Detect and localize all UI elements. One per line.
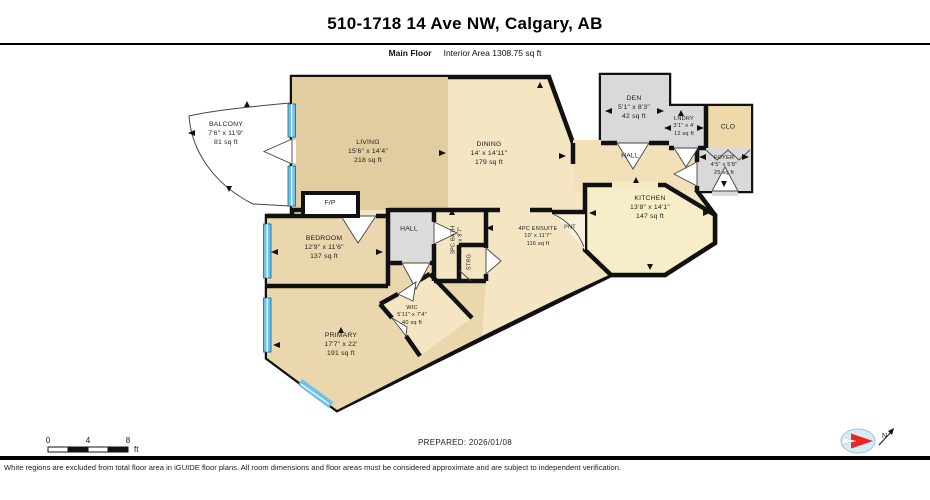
prepared-date: PREPARED: 2026/01/08 xyxy=(0,438,930,447)
room-label-wic: WIC 5'11" x 7'4" 40 sq ft xyxy=(397,305,427,327)
room-label-bedroom: BEDROOM 12'9" x 11'6" 137 sq ft xyxy=(304,235,343,261)
room-label-fireplace: F/P xyxy=(324,200,335,209)
room-label-primary: PRIMARY 17'7" x 22' 191 sq ft xyxy=(324,332,357,358)
room-label-bath: 3PC BATH 5'1" x 8'7" xyxy=(451,226,466,255)
room-label-hall-lower: HALL xyxy=(400,226,418,235)
room-label-pantry: PNT xyxy=(564,224,576,231)
room-label-laundry: LNDRY 3'1" x 4' 12 sq ft xyxy=(673,116,694,138)
room-label-balcony: BALCONY 7'6" x 11'9" 81 sq ft xyxy=(208,121,243,147)
room-label-ensuite: 4PC ENSUITE 10' x 11'7" 116 sq ft xyxy=(519,226,558,248)
room-label-dining: DINING 14' x 14'11" 179 sq ft xyxy=(471,141,508,167)
room-label-hall-upper: HALL xyxy=(621,153,639,162)
room-label-storage: STRG xyxy=(466,254,473,270)
room-label-kitchen: KITCHEN 13'8" x 14'1" 147 sq ft xyxy=(630,195,670,221)
scale-bar xyxy=(48,447,128,452)
disclaimer-text: White regions are excluded from total fl… xyxy=(4,463,924,472)
room-label-foyer: FOYER 4'5" x 5'8" 25 sq ft xyxy=(711,155,738,177)
room-label-closet: CLO xyxy=(721,124,736,133)
room-label-den: DEN 5'1" x 8'3" 42 sq ft xyxy=(618,95,650,121)
room-label-living: LIVING 15'6" x 14'4" 218 sq ft xyxy=(348,139,388,165)
footer-divider xyxy=(0,456,930,460)
room-shape-hall-lower xyxy=(388,208,434,263)
floorplan-page: { "header": { "title": "510-1718 14 Ave … xyxy=(0,0,930,500)
